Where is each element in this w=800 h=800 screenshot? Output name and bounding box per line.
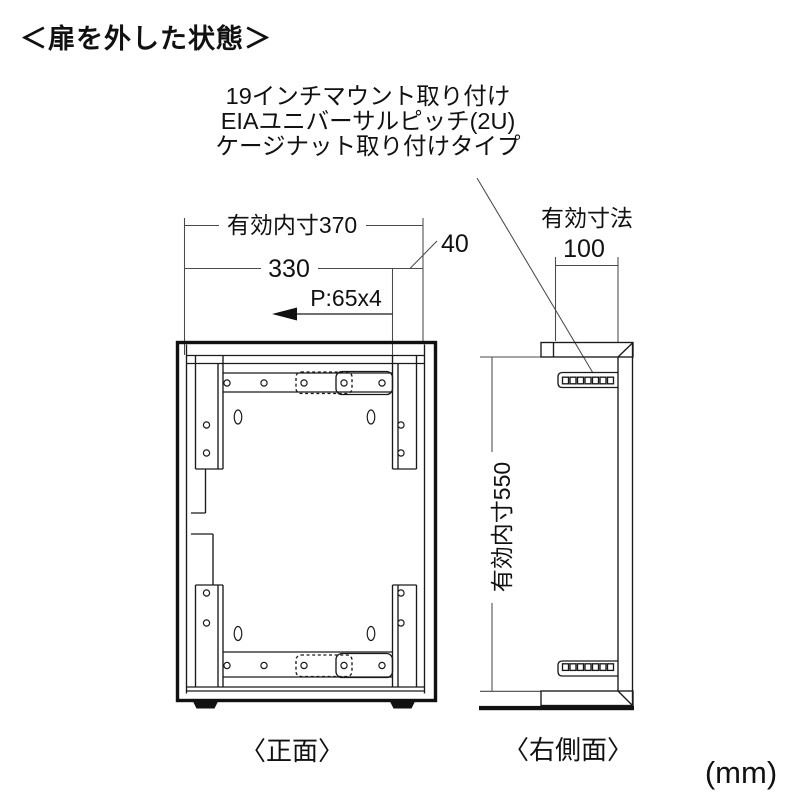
unit-note: (mm) (705, 755, 777, 790)
drawing-svg: ＜扉を外した状態＞ 19インチマウント取り付け EIAユニバーサルピッチ(2U)… (0, 0, 800, 800)
side-top-panel (541, 343, 633, 358)
left-lower-rail-column (196, 585, 224, 687)
dim-line-100 (556, 257, 619, 343)
front-view-caption: 〈正面〉 (240, 736, 344, 766)
dim-label-100: 100 (563, 235, 605, 263)
top-bar-holes (224, 380, 385, 386)
top-panel-edges (187, 356, 425, 364)
rail-column-holes (203, 422, 404, 626)
dim-label-330: 330 (268, 255, 310, 283)
bottom-panel-edges (187, 687, 425, 691)
page-title: ＜扉を外した状態＞ (20, 23, 272, 54)
side-bottom-corner-bend (618, 691, 633, 706)
bottom-mounting-bar (223, 652, 393, 677)
dim-label-depth: 有効寸法 (541, 205, 633, 231)
front-outer-frame (178, 343, 436, 701)
front-view-dimensions: 有効内寸370 330 40 P:65x4 (185, 212, 469, 373)
front-right-foot (390, 702, 415, 709)
side-base-line (479, 706, 634, 710)
side-wall-inner-edges (187, 345, 425, 694)
pitch-arrow-head (272, 308, 297, 321)
right-lower-rail-column (393, 585, 417, 687)
side-bottom-cagenut-holes (563, 664, 614, 671)
annotation-line-2: EIAユニバーサルピッチ(2U) (221, 108, 516, 134)
side-top-cagenut-rail (558, 373, 618, 388)
front-left-foot (193, 702, 218, 709)
side-rear-panel (618, 343, 633, 706)
dim-label-inner-width-370: 有効内寸370 (227, 212, 357, 238)
technical-drawing-page: ＜扉を外した状態＞ 19インチマウント取り付け EIAユニバーサルピッチ(2U)… (0, 0, 800, 800)
side-top-cagenut-holes (563, 377, 614, 384)
front-view (178, 343, 436, 709)
bottom-bar-holes (224, 662, 385, 668)
dim-label-pitch: P:65x4 (310, 285, 382, 311)
dim-label-40: 40 (441, 230, 469, 258)
panel-slots (234, 410, 375, 641)
side-view-caption: 〈右側面〉 (503, 735, 633, 765)
extension-lines (185, 218, 424, 373)
side-view-dimensions: 有効寸法 100 有効内寸550 (480, 205, 633, 691)
left-wall-joint-notch (191, 469, 213, 585)
annotation-line-3: ケージナット取り付けタイプ (215, 133, 521, 159)
top-mounting-bar (223, 373, 393, 392)
annotation-line-1: 19インチマウント取り付け (226, 83, 511, 109)
side-top-corner-bend (618, 343, 633, 357)
side-bottom-panel (541, 691, 633, 706)
dim-label-inner-height-550: 有効内寸550 (489, 462, 515, 592)
